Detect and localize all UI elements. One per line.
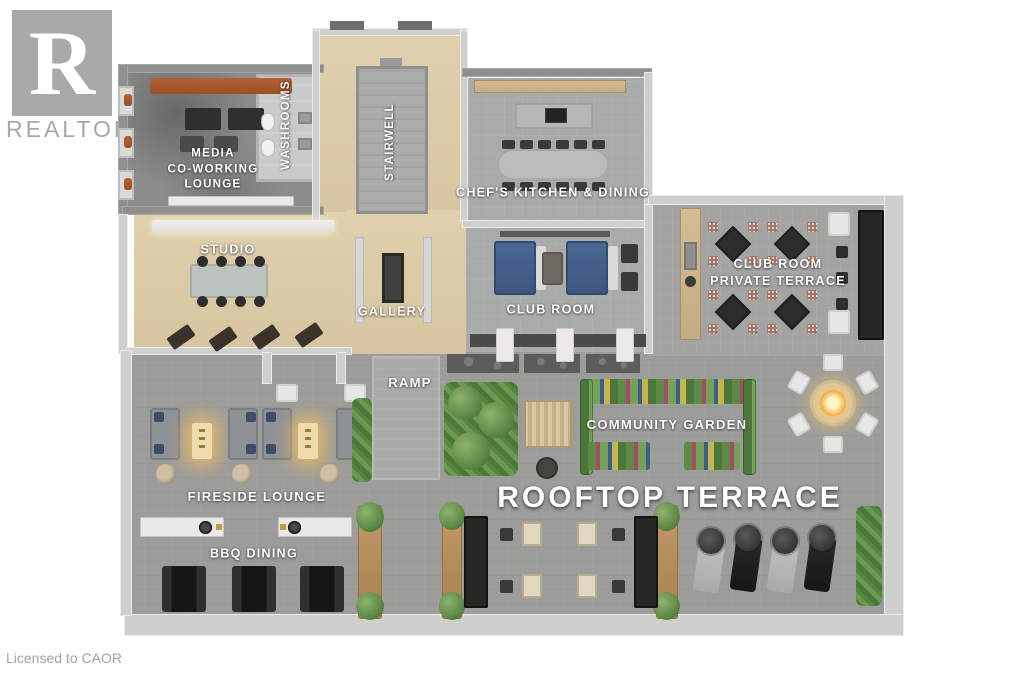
picnic-table — [162, 566, 206, 612]
label-washrooms: WASHROOMS — [279, 80, 295, 170]
pergola — [524, 400, 572, 448]
stool — [216, 296, 227, 307]
parapet-cap — [330, 21, 364, 30]
stool — [254, 256, 265, 267]
wall-stub — [262, 352, 272, 384]
realtor-logo-letter: R — [29, 17, 95, 109]
fire-table — [192, 423, 212, 459]
wall — [648, 195, 904, 205]
cooktop — [545, 108, 567, 123]
fire-pit-chair — [823, 354, 843, 371]
knob — [216, 524, 222, 530]
sofa-armrest — [608, 246, 618, 290]
planter-greenery — [439, 592, 465, 620]
gallery-floor — [346, 210, 466, 354]
cube-chair — [276, 384, 298, 402]
stool — [197, 296, 208, 307]
pillar — [616, 328, 634, 362]
label-bbq-dining: BBQ DINING — [210, 546, 298, 563]
fire-pit-flame — [820, 390, 846, 416]
bar-sink — [685, 276, 696, 287]
light-fixture — [152, 220, 334, 233]
umbrella — [809, 525, 835, 551]
sofa-cushion — [266, 412, 276, 422]
daybed-bench — [858, 210, 884, 340]
planter-greenery — [356, 592, 384, 620]
balcony-chair — [124, 178, 132, 190]
terrace-chair — [708, 222, 718, 232]
balcony-chair — [124, 94, 132, 106]
dining-chair — [502, 140, 515, 149]
palm-plant — [448, 386, 482, 420]
wall — [644, 204, 653, 354]
bench — [634, 516, 658, 608]
garden-planter-bottom — [684, 442, 740, 470]
label-studio: STUDIO — [200, 242, 255, 259]
perimeter-wall-left — [120, 350, 132, 616]
coffee-table — [185, 108, 221, 130]
wall — [462, 68, 652, 77]
sofa — [150, 78, 292, 94]
stool — [235, 296, 246, 307]
stool — [254, 296, 265, 307]
cafe-chair — [500, 528, 513, 541]
lounge-seat — [828, 310, 850, 334]
terrace-chair — [748, 324, 758, 334]
label-ramp: RAMP — [388, 374, 431, 392]
ottoman — [320, 464, 340, 484]
terrace-chair — [708, 324, 718, 334]
dining-chair — [520, 140, 533, 149]
toilet — [262, 114, 274, 130]
cafe-table — [577, 522, 597, 546]
cafe-table — [522, 574, 542, 598]
umbrella — [735, 525, 761, 551]
cafe-chair — [612, 580, 625, 593]
knob — [280, 524, 286, 530]
pillar — [556, 328, 574, 362]
wall — [118, 214, 128, 354]
sofa-blue — [494, 241, 536, 295]
terrace-chair — [767, 290, 777, 300]
planter-greenery — [356, 502, 384, 532]
palm-plant — [452, 432, 490, 470]
hedge — [352, 398, 372, 482]
dining-chair — [538, 140, 551, 149]
label-chefs-kitchen: CHEF'S KITCHEN & DINING — [456, 185, 650, 202]
gallery-display — [382, 253, 404, 303]
stair-landing — [380, 58, 402, 66]
ottoman — [232, 464, 252, 484]
umbrella — [772, 528, 798, 554]
label-private-terrace: CLUB ROOM PRIVATE TERRACE — [710, 256, 846, 290]
label-gallery: GALLERY — [358, 304, 426, 321]
label-community-garden: COMMUNITY GARDEN — [587, 416, 748, 434]
label-stairwell: STAIRWELL — [383, 103, 399, 181]
picnic-table — [232, 566, 276, 612]
realtor-logo-icon: R — [12, 10, 112, 116]
terrace-chair — [748, 290, 758, 300]
label-fireside-lounge: FIRESIDE LOUNGE — [188, 488, 327, 506]
lounge-seat — [828, 212, 850, 236]
sofa-cushion — [266, 444, 276, 454]
grill — [199, 521, 212, 534]
label-rooftop-terrace: ROOFTOP TERRACE — [497, 478, 843, 519]
fire-table — [298, 423, 318, 459]
terrace-chair — [708, 290, 718, 300]
perimeter-wall-bottom — [124, 614, 904, 636]
ottoman-square — [542, 252, 563, 285]
round-table — [536, 457, 558, 479]
cafe-chair — [500, 580, 513, 593]
pillar — [496, 328, 514, 362]
media-console — [500, 231, 610, 237]
floorplan-canvas: R REALTOR® Licensed to CAOR — [0, 0, 1024, 681]
credenza — [168, 196, 294, 206]
dining-chair — [556, 140, 569, 149]
kitchen-back-counter — [474, 80, 626, 93]
label-club-room: CLUB ROOM — [507, 302, 596, 319]
grill — [288, 521, 301, 534]
armchair — [621, 244, 638, 263]
sofa-blue — [566, 241, 608, 295]
dining-chair — [574, 140, 587, 149]
sofa-cushion — [154, 412, 164, 422]
terrace-chair — [767, 222, 777, 232]
sofa-cushion — [246, 412, 256, 422]
picnic-table — [300, 566, 344, 612]
garden-planter-top — [580, 379, 756, 404]
toilet — [262, 140, 274, 156]
terrace-chair — [807, 290, 817, 300]
umbrella — [698, 528, 724, 554]
terrace-chair — [767, 324, 777, 334]
coffee-table — [228, 108, 264, 130]
sofa-cushion — [246, 444, 256, 454]
terrace-chair — [748, 222, 758, 232]
parapet-cap — [398, 21, 432, 30]
garden-planter-bottom — [588, 442, 650, 470]
perimeter-wall-right — [884, 195, 904, 635]
studio-table — [190, 264, 268, 298]
dining-table — [497, 149, 609, 180]
wall — [122, 64, 324, 73]
wall — [122, 206, 324, 215]
fire-pit-chair — [823, 436, 843, 453]
planter-greenery — [439, 502, 465, 530]
wall — [126, 347, 352, 355]
bench — [464, 516, 488, 608]
sofa-cushion — [154, 444, 164, 454]
balcony-chair — [124, 136, 132, 148]
dining-chair — [592, 140, 605, 149]
hedge — [856, 506, 882, 606]
wall — [462, 220, 652, 228]
cafe-table — [577, 574, 597, 598]
armchair — [621, 272, 638, 291]
ottoman — [156, 464, 176, 484]
palm-plant — [478, 402, 514, 438]
bar-appliance — [684, 242, 697, 270]
label-media-lounge: MEDIA CO-WORKING LOUNGE — [168, 147, 259, 194]
sink-counter — [298, 112, 312, 124]
terrace-chair — [807, 324, 817, 334]
terrace-bar — [680, 208, 701, 340]
cafe-table — [522, 522, 542, 546]
terrace-chair — [807, 222, 817, 232]
wall — [312, 30, 320, 222]
cafe-chair — [612, 528, 625, 541]
side-table — [836, 298, 848, 310]
sink-counter — [298, 138, 312, 150]
wall-stub — [336, 352, 346, 384]
license-text: Licensed to CAOR — [6, 650, 122, 666]
